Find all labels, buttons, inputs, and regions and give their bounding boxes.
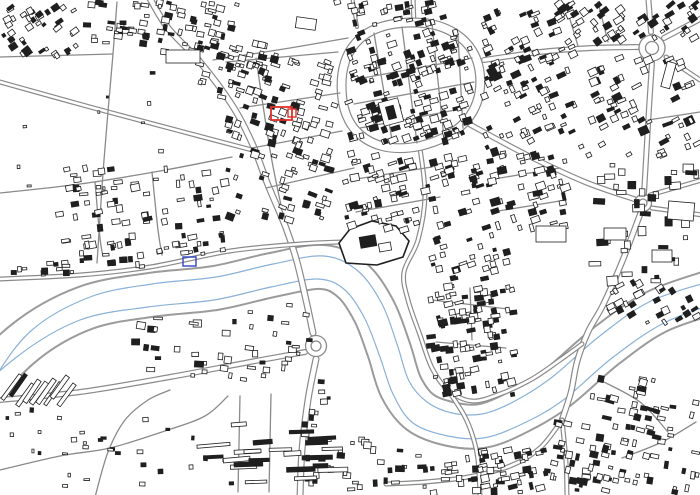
building xyxy=(153,327,157,333)
building xyxy=(431,31,435,35)
building xyxy=(212,187,219,195)
building xyxy=(122,220,130,226)
building xyxy=(55,18,63,25)
building xyxy=(608,466,613,470)
building xyxy=(189,181,194,188)
building xyxy=(349,70,357,75)
building xyxy=(26,15,32,22)
building xyxy=(56,267,62,271)
building xyxy=(414,34,421,40)
building xyxy=(395,4,403,10)
building xyxy=(201,252,205,256)
building xyxy=(501,372,509,380)
building xyxy=(528,208,537,216)
building xyxy=(645,416,652,421)
building xyxy=(136,321,146,329)
building xyxy=(17,165,20,169)
building xyxy=(510,472,519,480)
building xyxy=(73,43,78,48)
building xyxy=(128,33,133,36)
building xyxy=(429,255,436,261)
building xyxy=(638,378,647,387)
building xyxy=(428,297,434,304)
building xyxy=(84,479,90,481)
building xyxy=(590,393,594,399)
building xyxy=(310,79,319,86)
building xyxy=(417,50,424,58)
building xyxy=(84,201,89,206)
building xyxy=(399,165,408,170)
building xyxy=(320,399,327,405)
building xyxy=(435,292,439,298)
building xyxy=(178,29,183,36)
building xyxy=(162,209,168,215)
building xyxy=(449,88,456,95)
building xyxy=(441,477,449,481)
building xyxy=(185,25,193,31)
building xyxy=(613,424,618,430)
building xyxy=(605,174,615,180)
building xyxy=(626,424,631,429)
row-building xyxy=(253,439,272,445)
building xyxy=(493,248,497,252)
building xyxy=(451,318,457,321)
building xyxy=(482,224,491,230)
building xyxy=(410,74,417,81)
building xyxy=(503,447,512,454)
building xyxy=(444,221,451,227)
building xyxy=(136,261,140,267)
building xyxy=(213,215,220,220)
building xyxy=(416,455,421,458)
building xyxy=(642,266,647,272)
building xyxy=(494,9,500,17)
building xyxy=(71,8,77,13)
building xyxy=(636,427,645,433)
building xyxy=(303,312,309,317)
building xyxy=(331,102,338,108)
row-building xyxy=(289,430,313,434)
building xyxy=(476,344,481,348)
building xyxy=(534,166,545,174)
building xyxy=(353,20,357,27)
building xyxy=(482,39,488,46)
building xyxy=(449,309,456,315)
building xyxy=(225,116,233,123)
building xyxy=(575,454,579,461)
building xyxy=(51,3,60,12)
building xyxy=(84,255,92,260)
building xyxy=(351,441,355,444)
building xyxy=(440,346,448,352)
building xyxy=(494,85,502,91)
building xyxy=(621,248,627,252)
building xyxy=(235,210,240,214)
building xyxy=(397,211,403,216)
building xyxy=(533,202,538,208)
building xyxy=(633,480,638,485)
building xyxy=(475,318,481,321)
building xyxy=(441,105,447,110)
building xyxy=(384,478,387,484)
building xyxy=(255,64,260,69)
building xyxy=(245,345,254,350)
building xyxy=(618,169,625,176)
building xyxy=(601,488,610,494)
building xyxy=(689,34,699,43)
building xyxy=(506,285,511,290)
building xyxy=(62,453,67,455)
building xyxy=(576,438,584,444)
building xyxy=(556,71,566,79)
building xyxy=(534,17,539,23)
building xyxy=(686,171,697,176)
building xyxy=(315,93,321,100)
building xyxy=(499,133,503,138)
building xyxy=(103,187,105,190)
building xyxy=(569,129,576,134)
building xyxy=(302,121,309,129)
building xyxy=(68,473,70,477)
building xyxy=(235,3,240,7)
building xyxy=(306,338,312,341)
building xyxy=(597,176,605,183)
building xyxy=(503,258,510,265)
building xyxy=(80,431,85,434)
building xyxy=(440,15,447,20)
building xyxy=(444,153,453,161)
building xyxy=(80,259,84,263)
minor-road-9 xyxy=(266,168,354,188)
landmark-building-0 xyxy=(166,50,200,63)
building xyxy=(524,154,531,160)
building xyxy=(175,223,182,229)
building xyxy=(473,355,481,362)
building xyxy=(487,468,494,474)
building xyxy=(391,195,397,202)
building xyxy=(114,180,123,185)
building xyxy=(181,175,185,180)
building xyxy=(219,67,223,70)
building xyxy=(193,247,198,253)
building xyxy=(450,292,456,296)
building xyxy=(182,233,186,238)
building xyxy=(387,40,397,48)
building xyxy=(345,215,349,219)
building xyxy=(192,26,197,32)
building xyxy=(533,127,542,134)
building xyxy=(629,387,635,391)
row-building xyxy=(302,455,332,460)
building xyxy=(157,248,163,254)
building xyxy=(437,221,444,229)
building xyxy=(632,440,636,447)
building xyxy=(79,193,88,196)
building xyxy=(247,52,253,57)
building xyxy=(315,411,318,415)
building xyxy=(228,21,235,26)
landmark-building-3 xyxy=(667,201,694,221)
building xyxy=(558,128,564,134)
building xyxy=(177,198,184,202)
building xyxy=(83,23,90,28)
building xyxy=(490,261,496,268)
building xyxy=(82,235,91,240)
building xyxy=(594,1,601,8)
building xyxy=(499,153,506,159)
building xyxy=(182,42,187,46)
building xyxy=(191,436,194,440)
building xyxy=(55,211,63,217)
building xyxy=(85,241,90,248)
building xyxy=(22,267,27,270)
building xyxy=(247,366,255,370)
building xyxy=(596,434,604,442)
building xyxy=(664,25,669,30)
building xyxy=(568,1,575,8)
building xyxy=(431,263,435,267)
building xyxy=(467,261,476,268)
city-map-canvas[interactable] xyxy=(0,0,700,495)
building xyxy=(539,209,546,215)
building xyxy=(480,276,488,281)
building xyxy=(388,161,397,166)
building xyxy=(390,176,399,184)
building xyxy=(252,113,257,119)
landmark-building-6 xyxy=(604,228,626,240)
building xyxy=(114,31,118,34)
building xyxy=(429,159,437,167)
building xyxy=(541,448,547,453)
building xyxy=(440,364,448,370)
building xyxy=(684,133,691,141)
building xyxy=(386,4,392,10)
building xyxy=(672,117,680,123)
building xyxy=(589,261,601,266)
building xyxy=(296,154,304,159)
building xyxy=(198,80,203,85)
building xyxy=(429,196,436,201)
building xyxy=(587,67,598,77)
building xyxy=(461,319,469,323)
building xyxy=(352,159,357,163)
building xyxy=(589,9,593,13)
building xyxy=(629,100,636,109)
building xyxy=(559,200,566,206)
building xyxy=(155,357,160,360)
building xyxy=(139,40,146,47)
building xyxy=(460,373,465,379)
building xyxy=(76,186,81,191)
building xyxy=(467,238,473,242)
landmark-building-4 xyxy=(652,250,672,262)
building xyxy=(633,414,641,421)
building xyxy=(377,460,384,465)
building xyxy=(668,434,674,438)
building xyxy=(70,270,74,273)
building xyxy=(386,33,390,37)
building xyxy=(73,214,78,221)
building xyxy=(476,183,484,188)
building xyxy=(514,451,522,459)
building xyxy=(220,178,229,187)
building xyxy=(278,108,287,117)
building xyxy=(61,239,69,243)
building xyxy=(640,66,648,75)
building xyxy=(103,253,109,256)
building xyxy=(453,268,459,274)
building xyxy=(82,165,87,172)
map-viewport[interactable] xyxy=(0,0,700,495)
building xyxy=(430,98,439,104)
building xyxy=(161,17,170,24)
building xyxy=(424,8,432,14)
building xyxy=(107,201,115,207)
building xyxy=(147,101,151,105)
building xyxy=(549,103,556,110)
building xyxy=(421,187,431,195)
building xyxy=(111,245,115,250)
building xyxy=(120,21,126,25)
row-building xyxy=(244,449,261,453)
building xyxy=(154,178,159,181)
building xyxy=(491,488,497,495)
building xyxy=(425,0,433,6)
building xyxy=(453,356,459,362)
building xyxy=(659,245,668,248)
building xyxy=(613,478,619,483)
building xyxy=(414,100,422,107)
building xyxy=(395,466,404,472)
building xyxy=(98,168,105,175)
building xyxy=(296,352,300,356)
building xyxy=(578,144,584,149)
building xyxy=(671,95,680,103)
building xyxy=(602,445,609,453)
building xyxy=(107,27,113,31)
building xyxy=(506,132,513,138)
building xyxy=(569,460,575,467)
building xyxy=(467,328,476,333)
building xyxy=(489,232,493,238)
building xyxy=(517,225,522,231)
building xyxy=(597,398,606,402)
row-building xyxy=(231,422,246,427)
building xyxy=(388,52,392,56)
building xyxy=(143,417,149,422)
building xyxy=(158,4,162,8)
building xyxy=(250,324,254,329)
building xyxy=(383,139,388,144)
building xyxy=(510,350,518,355)
building xyxy=(228,55,233,60)
building xyxy=(337,453,345,459)
building xyxy=(373,23,377,27)
building xyxy=(350,173,360,182)
building xyxy=(482,265,489,272)
building xyxy=(218,353,223,360)
building xyxy=(391,481,399,484)
building xyxy=(141,3,149,7)
building xyxy=(459,261,467,266)
building xyxy=(436,265,443,272)
building xyxy=(632,116,638,123)
building xyxy=(197,218,204,222)
building xyxy=(511,37,520,45)
building xyxy=(598,141,606,148)
building xyxy=(157,29,165,35)
building xyxy=(180,243,187,247)
building xyxy=(659,138,669,146)
building xyxy=(483,14,491,21)
building xyxy=(481,350,486,354)
building xyxy=(210,198,213,201)
building xyxy=(91,38,97,42)
landmark-building-5 xyxy=(536,226,566,242)
building xyxy=(6,416,9,419)
building xyxy=(593,26,598,32)
building xyxy=(150,71,155,74)
building xyxy=(626,152,632,157)
building xyxy=(651,378,655,383)
building xyxy=(252,351,257,357)
building xyxy=(232,81,240,86)
building xyxy=(557,455,563,459)
building xyxy=(281,365,285,371)
building xyxy=(565,67,570,74)
row-building xyxy=(203,455,223,459)
building xyxy=(257,41,266,49)
building xyxy=(262,213,269,220)
building xyxy=(615,54,624,61)
building xyxy=(593,460,600,466)
building xyxy=(326,121,333,127)
building xyxy=(42,268,48,275)
building xyxy=(377,58,386,65)
building xyxy=(664,461,669,469)
building xyxy=(128,256,132,262)
building xyxy=(97,224,103,231)
building xyxy=(201,2,206,8)
building xyxy=(381,184,390,192)
building xyxy=(405,218,409,223)
building xyxy=(487,177,496,185)
building xyxy=(191,374,195,378)
building xyxy=(617,191,626,195)
building xyxy=(94,209,102,215)
building xyxy=(638,226,646,235)
building xyxy=(639,189,645,196)
building xyxy=(692,451,700,455)
building xyxy=(288,204,295,211)
building xyxy=(545,96,550,102)
building xyxy=(240,64,244,68)
landmark-building-8 xyxy=(378,242,391,252)
building xyxy=(106,96,108,98)
building xyxy=(234,120,241,128)
building xyxy=(151,346,159,351)
building xyxy=(590,451,599,459)
building xyxy=(491,453,499,460)
building xyxy=(320,154,330,163)
building xyxy=(207,205,211,208)
building xyxy=(513,116,520,122)
building xyxy=(334,0,341,5)
building xyxy=(233,175,238,180)
building xyxy=(610,114,619,122)
building xyxy=(445,470,452,474)
building xyxy=(271,96,278,103)
